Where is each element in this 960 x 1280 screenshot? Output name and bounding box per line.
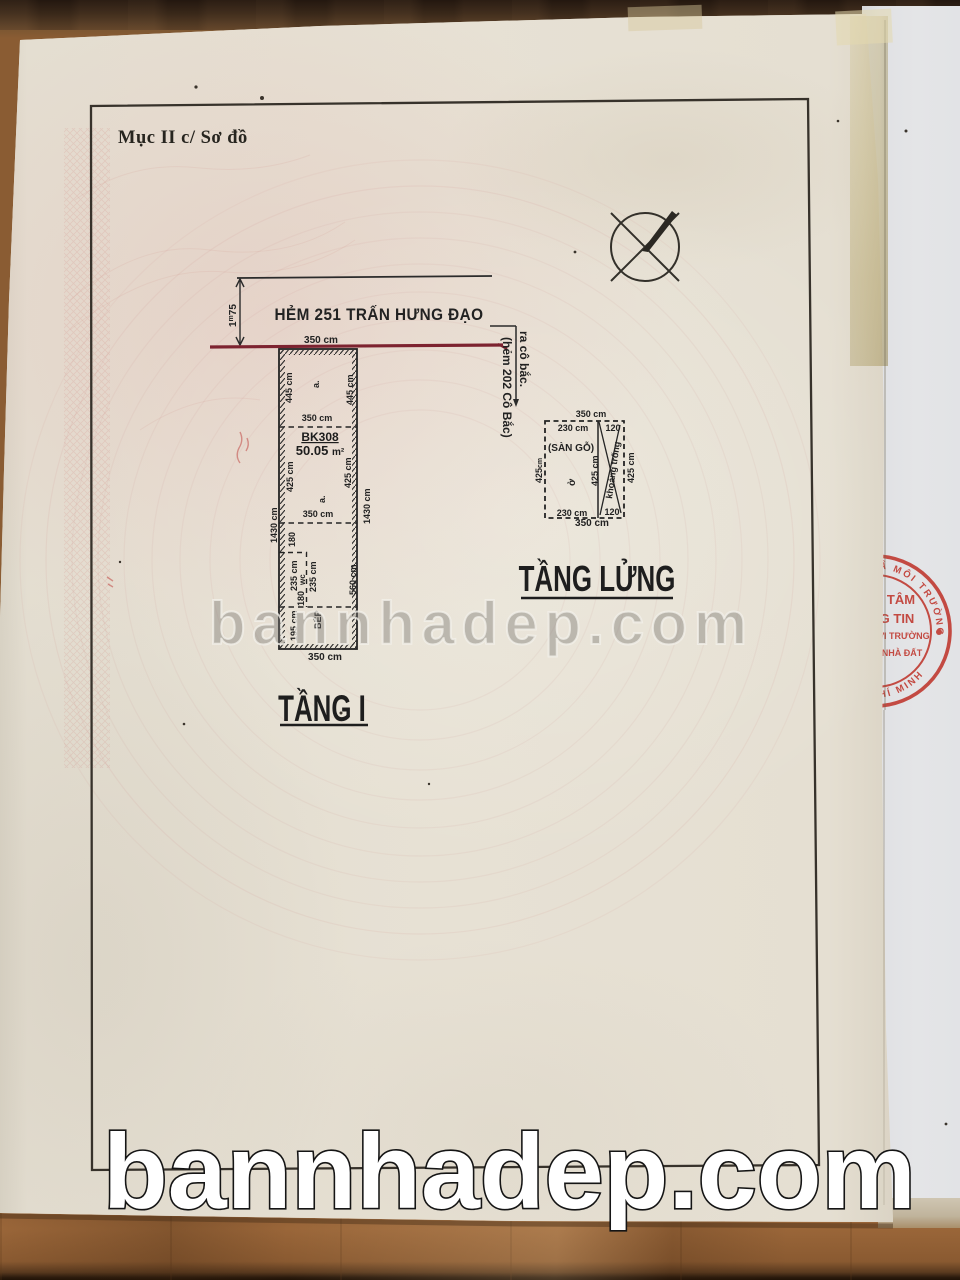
svg-text:235 cm: 235 cm (308, 561, 318, 592)
svg-text:1m75: 1m75 (228, 304, 239, 327)
svg-text:ở: ở (567, 478, 578, 486)
svg-text:445 cm: 445 cm (284, 372, 294, 403)
svg-text:350 cm: 350 cm (304, 335, 338, 346)
svg-text:BK308: BK308 (301, 430, 339, 444)
svg-text:a.: a. (311, 380, 321, 388)
svg-text:350 cm: 350 cm (302, 413, 333, 423)
svg-text:230 cm: 230 cm (558, 423, 589, 433)
svg-text:HẺM 251 TRẤN HƯNG ĐẠO: HẺM 251 TRẤN HƯNG ĐẠO (275, 304, 484, 324)
svg-text:(SÀN GỖ): (SÀN GỖ) (548, 441, 594, 454)
svg-text:425 cm: 425 cm (626, 452, 636, 483)
svg-text:425 cm: 425 cm (285, 461, 295, 492)
svg-text:120: 120 (604, 507, 619, 517)
svg-text:wc: wc (298, 574, 307, 586)
svg-text:350 cm: 350 cm (303, 509, 334, 519)
svg-text:khoảng trống: khoảng trống (604, 441, 622, 499)
svg-text:350 cm: 350 cm (576, 409, 607, 419)
svg-text:180: 180 (287, 532, 297, 547)
svg-text:425cm: 425cm (534, 458, 544, 483)
svg-text:425 cm: 425 cm (343, 457, 353, 488)
svg-text:ra cô bắc.: ra cô bắc. (517, 331, 532, 387)
svg-text:a.: a. (317, 495, 327, 503)
svg-text:TẦNG I: TẦNG I (278, 687, 366, 729)
svg-text:1430 cm: 1430 cm (269, 507, 279, 543)
svg-text:445 cm: 445 cm (345, 374, 355, 405)
svg-text:Mục II c/ Sơ đồ: Mục II c/ Sơ đồ (118, 128, 248, 148)
svg-text:425 cm: 425 cm (590, 455, 600, 486)
svg-text:1430 cm: 1430 cm (362, 488, 372, 524)
svg-text:120: 120 (605, 423, 620, 433)
svg-text:350 cm: 350 cm (575, 518, 609, 529)
svg-text:50.05 m²: 50.05 m² (296, 443, 345, 458)
svg-text:(hẻm 202 Cô Bắc): (hẻm 202 Cô Bắc) (500, 337, 515, 438)
svg-text:230 cm: 230 cm (557, 508, 588, 518)
